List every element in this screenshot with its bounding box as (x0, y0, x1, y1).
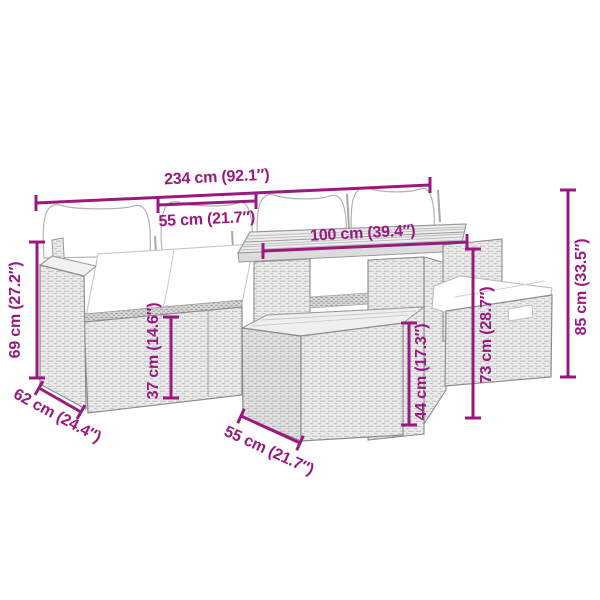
stool-height-label: 44 cm (17.3″) (413, 324, 430, 421)
front-stool-front (301, 323, 403, 441)
total-height-label: 85 cm (33.5″) (573, 239, 590, 336)
front-stool (242, 307, 424, 441)
arm-height-label: 69 cm (27.2″) (7, 262, 24, 359)
seat-height-label: 37 cm (14.6″) (145, 303, 162, 400)
table-height-label: 73 cm (28.7″) (478, 287, 495, 384)
diagram-canvas: 234 cm (92.1″) 55 cm (21.7″) 100 cm (39.… (0, 0, 600, 600)
stool-body (445, 295, 552, 386)
product-dimension-diagram: 234 cm (92.1″) 55 cm (21.7″) 100 cm (39.… (0, 0, 600, 600)
